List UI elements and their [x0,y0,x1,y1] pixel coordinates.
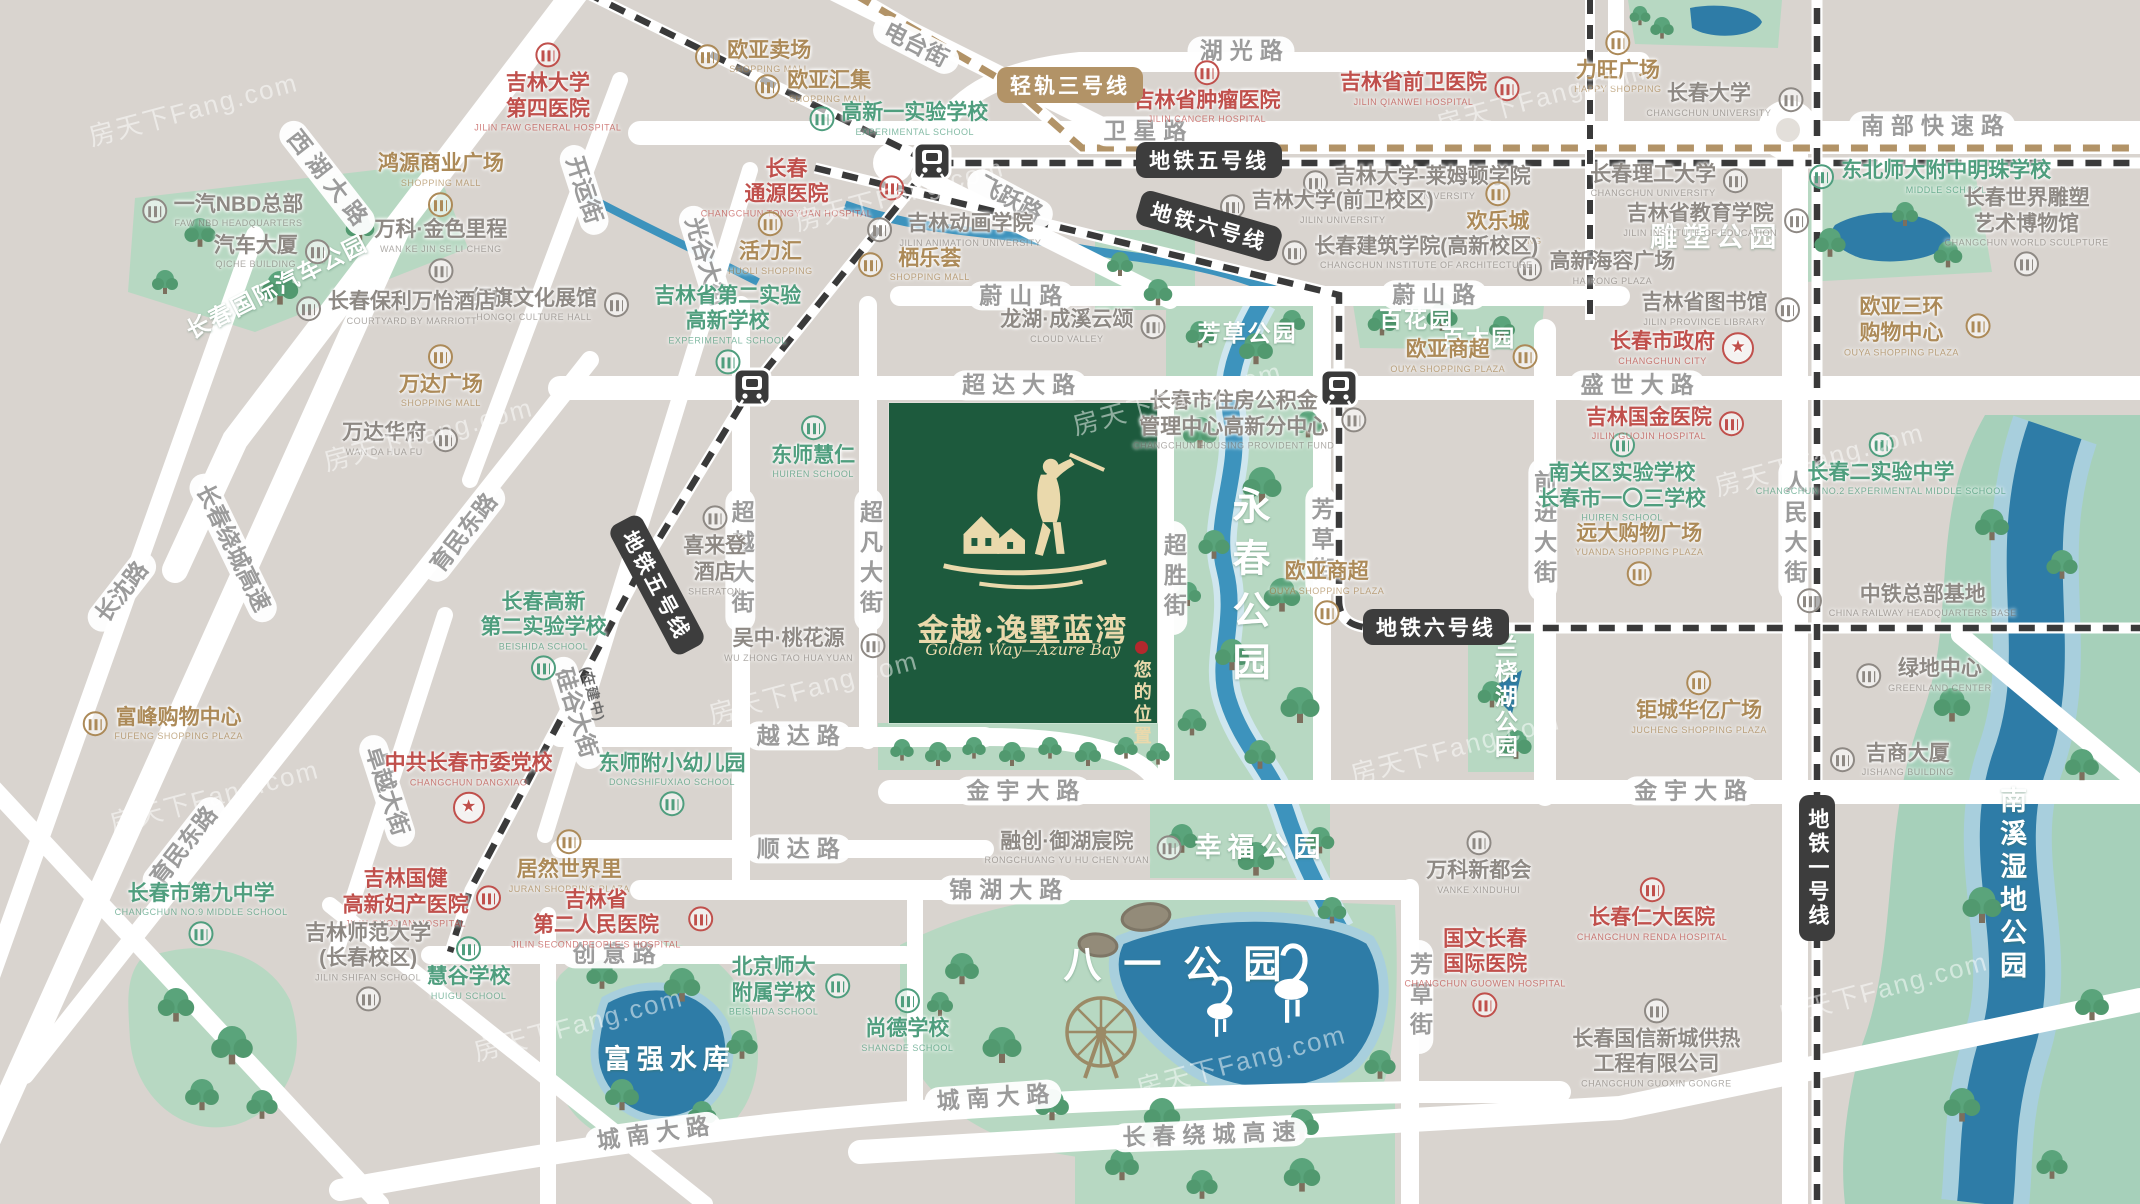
poi-name: 东北师大附中明珠学校 [1841,158,2051,184]
poi-name: 吉林国健 [364,867,448,893]
poi-name-en: YUANDA SHOPPING PLAZA [1575,548,1704,559]
poi-name-en: RONGCHUANG YU HU CHEN YUAN [984,855,1149,866]
poi-text: 吉林国金医院JILIN GUOJIN HOSPITAL [1586,405,1712,443]
poi-name-en: CHANGCHUN GUOXIN GONGRE [1581,1078,1732,1089]
poi-text: 国文长春国际医院CHANGCHUN GUOWEN HOSPITAL [1404,926,1565,989]
poi-text: 慧谷学校HUIGU SCHOOL [427,964,511,1002]
building-icon [428,344,453,369]
poi: 吉林师范大学(长春校区)JILIN SHIFAN SCHOOL [305,920,431,1011]
poi-name: 万科·金色里程 [374,218,507,244]
building-icon [1809,164,1834,189]
poi-text: 吴中·桃花源WU ZHONG TAO HUA YUAN [724,627,853,665]
poi: 汽车大厦QICHE BUILDING [214,233,330,271]
building-icon [305,239,330,264]
road-label: 超达大路 [950,371,1087,400]
poi-name-en: OUYA SHOPPING PLAZA [1844,347,1959,358]
poi: 融创·御湖宸院RONGCHUANG YU HU CHEN YUAN [984,829,1181,867]
poi: 国文长春国际医院CHANGCHUN GUOWEN HOSPITAL [1404,926,1565,1017]
poi-name-en: JILIN CANCER HOSPITAL [1148,115,1266,126]
poi-name-en: EXPERIMENTAL SCHOOL [856,127,975,138]
poi-text: 长春世界雕塑艺术博物馆CHANGCHUN WORLD SCULPTURE [1945,186,2109,249]
poi-name-en: SHERATON [688,586,741,597]
poi: 万达广场SHOPPING MALL [399,344,483,410]
poi-name: 欢乐城 [1466,210,1529,236]
poi-name: 吉林省图书馆 [1642,291,1768,317]
poi-name-en: FUFENG SHOPPING PLAZA [114,731,243,742]
poi: 吉林动画学院JILIN ANIMATION UNIVERSITY [868,211,1042,249]
road-label: 蔚山路 [1380,280,1487,309]
map-canvas: 金越·逸墅蓝湾 Golden Way—Azure Bay 您的位置 西湖大路开运… [0,0,2140,1204]
poi-name: 远大购物广场 [1576,521,1702,547]
poi: 远大购物广场YUANDA SHOPPING PLAZA [1575,521,1704,587]
building-icon [433,427,458,452]
poi-text: 中铁总部基地CHINA RAILWAY HEADQUARTERS BASE [1829,582,2017,620]
poi-name-en: JILIN UNIVERSITY [1300,215,1386,226]
poi-name: 中共长春市委党校 [385,751,553,777]
poi-text: 中共长春市委党校CHANGCHUN DANGXIAO [385,751,553,789]
building-icon [1282,240,1307,265]
poi: 栖乐荟SHOPPING MALL [858,246,970,284]
poi-text: 南关区实验学校长春市一〇三学校HUIREN SCHOOL [1538,460,1706,523]
poi-name-en: CHANGCHUN CITY [1618,356,1707,367]
poi-name: 欧亚汇集 [787,68,871,94]
poi-name-line2: 购物中心 [1859,320,1943,346]
project-name-en: Golden Way—Azure Bay [925,640,1120,659]
poi-name-en: JILIN INSTITUTE OF EDUCATION [1623,228,1777,239]
poi-name-en: SHOPPING MALL [401,399,481,410]
poi-text: 喜来登酒店SHERATON [683,534,746,597]
park-label: 八一公园 [1063,933,1303,988]
poi-name-line2: 艺术博物馆 [1974,211,2079,237]
metro-line-badge: 地铁一号线 [1799,795,1835,941]
poi-text: 融创·御湖宸院RONGCHUANG YU HU CHEN YUAN [984,829,1149,867]
poi-name: 居然世界里 [517,857,622,883]
poi-text: 长春市住房公积金管理中心高新分中心CHANGCHUN HOUSING PROVI… [1133,389,1334,452]
building-icon [531,655,556,680]
poi-text: 高新海容广场HAIRONG PLAZA [1549,250,1675,288]
poi-name-line2: (长春校区) [319,946,417,972]
poi-name: 欧亚三环 [1859,295,1943,321]
poi: 东师慧仁HUIREN SCHOOL [771,415,855,481]
building-icon [535,42,560,67]
road-label: 蔚山路 [967,282,1074,311]
poi: 长春仁大医院CHANGCHUN RENDA HOSPITAL [1577,877,1727,943]
poi-name-en: JILIN SECOND PEOPLE'S HOSPITAL [511,939,681,950]
poi-text: 鸿源商业广场SHOPPING MALL [378,151,504,189]
poi-text: 吉林省图书馆JILIN PROVINCE LIBRARY [1642,291,1768,329]
poi-name-en: COURTYARD BY MARRIOTT [347,316,478,327]
poi-name: 吉林大学(前卫校区) [1252,188,1434,214]
poi-name: 长春市政府 [1610,329,1715,355]
poi-name: 融创·御湖宸院 [1000,829,1133,855]
poi-text: 一汽NBD总部FAW NBD HEADQUARTERS [174,192,304,230]
poi: 吉林省前卫医院JILIN QIANWEI HOSPITAL [1340,70,1519,108]
poi-text: 吉商大厦JISHANG BUILDING [1862,741,1954,779]
poi: 尚德学校SHANGDE SCHOOL [861,988,953,1054]
poi-name-line2: 工程有限公司 [1593,1052,1719,1078]
poi-text: 北京师大附属学校BEISHIDA SCHOOL [729,954,819,1017]
poi: 万达华府WAN DA HUA FU [342,421,458,459]
building-icon [142,198,167,223]
poi: 长春保利万怡酒店COURTYARD BY MARRIOTT [296,289,496,327]
star-icon: ★ [1722,332,1754,364]
park-label: 永春公园 [1220,486,1275,694]
poi-name-en: CHANGCHUN HOUSING PROVIDENT FUND [1133,441,1334,452]
poi-text: 欧亚商超OUYA SHOPPING PLAZA [1269,560,1384,598]
building-icon [860,633,885,658]
poi-name: 喜来登 [683,534,746,560]
poi-name-en: BEISHIDA SCHOOL [729,1007,819,1018]
poi-name-en: JILIN SHIFAN SCHOOL [315,972,421,983]
poi-text: 长春通源医院CHANGCHUN TONGYUAN HOSPITAL [701,156,873,219]
poi-text: 富峰购物中心FUFENG SHOPPING PLAZA [114,705,243,743]
poi-name: 欧亚商超 [1406,338,1490,364]
your-location-marker: 您的位置 [1129,641,1155,748]
road-label: 盛世大路 [1569,371,1706,400]
poi-text: 东师慧仁HUIREN SCHOOL [771,443,855,481]
poi-name: 慧谷学校 [427,964,511,990]
poi-text: 龙湖·成溪云颂CLOUD VALLEY [1000,307,1133,345]
poi-name-en: SHOPPING MALL [890,273,970,284]
poi-name-en: OUYA SHOPPING PLAZA [1269,586,1384,597]
poi-name-en: JILIN PROVINCE LIBRARY [1643,317,1765,328]
road-label: 南部快速路 [1849,112,2016,141]
poi-name: 国文长春 [1443,926,1527,952]
poi-name: 万达广场 [399,372,483,398]
poi-name-en: HUIGU SCHOOL [431,991,507,1002]
poi-name: 活力汇 [739,240,802,266]
poi: 高新一实验学校EXPERIMENTAL SCHOOL [809,100,988,138]
poi-text: 长春保利万怡酒店COURTYARD BY MARRIOTT [328,289,496,327]
poi-text: 欧亚商超OUYA SHOPPING PLAZA [1390,338,1505,376]
building-icon [1156,835,1181,860]
poi-name: 吉林师范大学 [305,920,431,946]
building-icon [2014,252,2039,277]
poi-name-en: HUIREN SCHOOL [772,470,854,481]
poi: 中铁总部基地CHINA RAILWAY HEADQUARTERS BASE [1797,582,2017,620]
poi: 吉林省图书馆JILIN PROVINCE LIBRARY [1642,291,1800,329]
building-icon [1966,314,1991,339]
building-icon [476,886,501,911]
building-icon [456,936,481,961]
poi-name-line2: 高新学校 [686,309,770,335]
poi: 长春理工大学CHANGCHUN UNIVERSITY [1590,162,1748,200]
poi: 南关区实验学校长春市一〇三学校HUIREN SCHOOL [1538,432,1706,523]
your-location-dot [1135,641,1148,654]
poi: 吉林省第二人民医院JILIN SECOND PEOPLE'S HOSPITAL [511,887,713,950]
building-icon [1784,208,1809,233]
poi-name: 长春仁大医院 [1589,905,1715,931]
poi: 喜来登酒店SHERATON [683,506,746,597]
poi-name-en: DONGSHIFUXIAO SCHOOL [609,778,735,789]
poi: 龙湖·成溪云颂CLOUD VALLEY [1000,307,1165,345]
poi-text: 吉林省第二人民医院JILIN SECOND PEOPLE'S HOSPITAL [511,887,681,950]
poi-text: 长春市政府CHANGCHUN CITY [1610,329,1715,367]
poi-name-en: GREENLAND CENTER [1888,683,1992,694]
building-icon [895,988,920,1013]
building-icon [296,296,321,321]
building-icon [1140,314,1165,339]
building-icon [1512,344,1537,369]
poi: 吉林省肿瘤医院JILIN CANCER HOSPITAL [1133,60,1280,126]
poi-name-en: OUYA SHOPPING PLAZA [1390,364,1505,375]
poi-text: 吉林省肿瘤医院JILIN CANCER HOSPITAL [1133,88,1280,126]
poi-name-en: SHOPPING MALL [401,178,481,189]
poi-name: 长春世界雕塑 [1964,186,2090,212]
poi: 万科·金色里程WAN KE JIN SE LI CHENG [374,218,507,284]
building-icon [1473,992,1498,1017]
poi: 钜城华亿广场JUCHENG SHOPPING PLAZA [1631,670,1767,736]
building-icon [1605,30,1630,55]
poi-name-en: JILIN QIANWEI HOSPITAL [1354,97,1474,108]
road-label: 超胜街 [1158,521,1187,635]
building-icon [1797,588,1822,613]
poi: 北京师大附属学校BEISHIDA SCHOOL [729,954,851,1017]
poi-name: 吴中·桃花源 [733,627,845,653]
poi-name: 一汽NBD总部 [174,192,304,218]
poi-name-en: QICHE BUILDING [216,259,297,270]
poi-name: 东师慧仁 [771,443,855,469]
poi-text: 万科·金色里程WAN KE JIN SE LI CHENG [374,218,507,256]
building-icon [825,974,850,999]
building-icon [809,107,834,132]
poi-name: 长春理工大学 [1590,162,1716,188]
poi-text: 吉林大学第四医院JILIN FAW GENERAL HOSPITAL [474,70,621,133]
road-label: 金宇大路 [1622,776,1759,805]
building-icon [1341,408,1366,433]
poi: 万科新都会VANKE XINDUHUI [1426,830,1531,896]
poi-text: 长春市第九中学CHANGCHUN NO.9 MIDDLE SCHOOL [115,881,288,919]
building-icon [428,192,453,217]
poi-name: 绿地中心 [1898,657,1982,683]
poi-text: 长春高新第二实验学校BEISHIDA SCHOOL [481,589,607,652]
poi-name: 汽车大厦 [214,233,298,259]
poi-name-en: JILIN ANIMATION UNIVERSITY [900,238,1042,249]
building-icon [1640,877,1665,902]
poi-name-en: JILIN FAW GENERAL HOSPITAL [474,123,621,134]
poi-name: 吉商大厦 [1866,741,1950,767]
road-label: 超凡大街 [854,488,883,632]
metro-line-badge: 地铁五号线 [1136,142,1282,178]
poi-name-en: WAN KE JIN SE LI CHENG [380,244,502,255]
poi: 长春二实验中学CHANGCHUN NO.2 EXPERIMENTAL MIDDL… [1756,432,2007,498]
poi: 欧亚三环购物中心OUYA SHOPPING PLAZA [1844,295,1991,358]
poi-name-line2: 长春市一〇三学校 [1538,486,1706,512]
poi-name: 长春大学 [1667,81,1751,107]
poi-name-line2: 管理中心高新分中心 [1139,414,1328,440]
poi-text: 绿地中心GREENLAND CENTER [1888,657,1992,695]
poi-name-line2: 通源医院 [745,182,829,208]
poi-name-en: CHANGCHUN NO.2 EXPERIMENTAL MIDDLE SCHOO… [1756,487,2007,498]
poi-text: 万达广场SHOPPING MALL [399,372,483,410]
poi-name: 万科新都会 [1426,858,1531,884]
park-label: 幸福公园 [1194,826,1326,865]
building-icon [1775,297,1800,322]
park-label: 富强水库 [604,1038,736,1077]
project-logo-golfer-icon [924,435,1122,601]
building-icon [1466,830,1491,855]
project-block: 金越·逸墅蓝湾 Golden Way—Azure Bay [889,403,1157,723]
park-label: 芳草公园 [1198,314,1298,348]
poi-text: 尚德学校SHANGDE SCHOOL [861,1016,953,1054]
poi-text: 吉林大学(前卫校区)JILIN UNIVERSITY [1252,188,1434,226]
poi-name-en: FAW NBD HEADQUARTERS [175,219,303,230]
poi-text: 吉林动画学院JILIN ANIMATION UNIVERSITY [900,211,1042,249]
building-icon [1869,432,1894,457]
poi: 欧亚商超OUYA SHOPPING PLAZA [1390,338,1537,376]
poi-name-en: CHANGCHUN UNIVERSITY [1591,188,1716,199]
building-icon [356,986,381,1011]
poi-name: 吉林动画学院 [907,211,1033,237]
building-icon [1719,411,1744,436]
poi-text: 长春大学CHANGCHUN UNIVERSITY [1646,81,1771,119]
poi: 一汽NBD总部FAW NBD HEADQUARTERS [142,192,304,230]
building-icon [1856,663,1881,688]
poi-name-en: BEISHIDA SCHOOL [499,641,589,652]
poi-name: 万达华府 [342,421,426,447]
poi-name: 吉林省教育学院 [1627,202,1774,228]
poi-text: 吉林省教育学院JILIN INSTITUTE OF EDUCATION [1623,202,1777,240]
poi-name-en: CHANGCHUN DANGXIAO [410,778,528,789]
poi: 居然世界里JURAN SHOPPING PLAZA [509,829,630,895]
poi-text: 万达华府WAN DA HUA FU [342,421,426,459]
building-icon [1627,562,1652,587]
poi-text: 长春理工大学CHANGCHUN UNIVERSITY [1590,162,1716,200]
poi-text: 长春仁大医院CHANGCHUN RENDA HOSPITAL [1577,905,1727,943]
building-icon [557,829,582,854]
park-label: 兰桡湖公园 [1487,635,1521,760]
poi: 长春大学CHANGCHUN UNIVERSITY [1646,81,1803,119]
poi-name-en: HUOLI SHOPPING [728,266,813,277]
poi-text: 万科新都会VANKE XINDUHUI [1426,858,1531,896]
poi-text: 欧亚三环购物中心OUYA SHOPPING PLAZA [1844,295,1959,358]
poi-name-en: CHANGCHUN UNIVERSITY [1646,108,1771,119]
building-icon [1778,87,1803,112]
star-icon: ★ [453,792,485,824]
poi-name-en: VANKE XINDUHUI [1437,885,1520,896]
poi-name-en: HAIRONG PLAZA [1573,276,1653,287]
poi-text: 活力汇HUOLI SHOPPING [728,240,813,278]
road-label: 锦湖大路 [937,875,1074,904]
poi-name-en: CHANGCHUN RENDA HOSPITAL [1577,932,1727,943]
poi: 长春市第九中学CHANGCHUN NO.9 MIDDLE SCHOOL [115,881,288,947]
poi: 慧谷学校HUIGU SCHOOL [427,936,511,1002]
poi-name-line2: 高新妇产医院 [343,892,469,918]
poi-name-en: CHANGCHUN INSTITUTE OF ARCHITECTURE [1320,261,1533,272]
poi-name-en: JUCHENG SHOPPING PLAZA [1631,725,1767,736]
poi-name-en: CLOUD VALLEY [1030,334,1103,345]
poi-text: 汽车大厦QICHE BUILDING [214,233,298,271]
poi-name: 南关区实验学校 [1549,460,1696,486]
poi-name: 鸿源商业广场 [378,151,504,177]
poi-name: 长春建筑学院(高新校区) [1314,234,1538,260]
poi-name: 长春国信新城供热 [1572,1026,1740,1052]
poi-name-en: JILIN GUOJIN HOSPITAL [1592,432,1706,443]
poi-text: 长春二实验中学CHANGCHUN NO.2 EXPERIMENTAL MIDDL… [1756,460,2007,498]
poi-name-line2: 第二实验学校 [481,615,607,641]
poi-name: 中铁总部基地 [1860,582,1986,608]
poi-name: 龙湖·成溪云颂 [1000,307,1133,333]
poi: 吉商大厦JISHANG BUILDING [1830,741,1954,779]
building-icon [801,415,826,440]
poi: 长春世界雕塑艺术博物馆CHANGCHUN WORLD SCULPTURE [1945,186,2109,277]
poi-name-en: WU ZHONG TAO HUA YUAN [724,653,853,664]
poi-name: 长春高新 [502,589,586,615]
building-icon [1314,600,1339,625]
poi-name-en: CHANGCHUN WORLD SCULPTURE [1945,238,2109,249]
poi-name-en: CHINA RAILWAY HEADQUARTERS BASE [1829,609,2017,620]
road-label: 金宇大路 [954,776,1091,805]
poi-text: 长春国信新城供热工程有限公司CHANGCHUN GUOXIN GONGRE [1572,1026,1740,1089]
poi-name-line2: 酒店 [694,559,736,585]
building-icon [1494,77,1519,102]
poi-name: 东师附小幼儿园 [598,751,745,777]
poi-name: 欧亚商超 [1285,560,1369,586]
poi-name: 长春市第九中学 [128,881,275,907]
poi-name: 吉林省 [565,887,628,913]
poi-name: 长春市住房公积金 [1150,389,1318,415]
poi-name-en: EXPERIMENTAL SCHOOL [668,335,787,346]
poi-name-en: JISHANG BUILDING [1862,768,1954,779]
poi-name: 欧亚卖场 [727,38,811,64]
poi: 长春国信新城供热工程有限公司CHANGCHUN GUOXIN GONGRE [1572,998,1740,1089]
building-icon [715,349,740,374]
poi: 吉林省教育学院JILIN INSTITUTE OF EDUCATION [1623,202,1809,240]
poi: 高新海容广场HAIRONG PLAZA [1517,250,1675,288]
poi: 吉林省第二实验高新学校EXPERIMENTAL SCHOOL [654,283,801,374]
poi-name-en: CHANGCHUN NO.9 MIDDLE SCHOOL [115,908,288,919]
poi-name: 高新海容广场 [1549,250,1675,276]
building-icon [1194,60,1219,85]
road-label: 顺达路 [745,834,852,863]
building-icon [695,44,720,69]
poi-name-line2: 附属学校 [732,980,816,1006]
poi-name: 高新一实验学校 [841,100,988,126]
poi: 长春通源医院CHANGCHUN TONGYUAN HOSPITAL [701,156,905,219]
building-icon [1687,670,1712,695]
building-icon [428,258,453,283]
building-icon [755,74,780,99]
building-icon [1830,747,1855,772]
building-icon [1723,168,1748,193]
poi: 绿地中心GREENLAND CENTER [1856,657,1992,695]
poi-name-en: CHANGCHUN GUOWEN HOSPITAL [1404,978,1565,989]
poi: 长春市住房公积金管理中心高新分中心CHANGCHUN HOUSING PROVI… [1133,389,1366,452]
poi-text: 栖乐荟SHOPPING MALL [890,246,970,284]
poi-name: 吉林省前卫医院 [1340,70,1487,96]
poi-text: 吉林省前卫医院JILIN QIANWEI HOSPITAL [1340,70,1487,108]
poi-name-line2: 第二人民医院 [533,913,659,939]
poi-name-line2: 国际医院 [1443,952,1527,978]
building-icon [659,792,684,817]
park-label: 南溪湿地公园 [1992,786,2031,984]
poi-text: 远大购物广场YUANDA SHOPPING PLAZA [1575,521,1704,559]
your-location-label: 您的位置 [1129,660,1155,748]
poi: 活力汇HUOLI SHOPPING [728,212,813,278]
building-icon [879,175,904,200]
poi-name: 尚德学校 [865,1016,949,1042]
building-icon [702,506,727,531]
poi-name: 栖乐荟 [898,246,961,272]
building-icon [604,292,629,317]
poi-name: 钜城华亿广场 [1636,698,1762,724]
poi: 鸿源商业广场SHOPPING MALL [378,151,504,217]
poi-text: 钜城华亿广场JUCHENG SHOPPING PLAZA [1631,698,1767,736]
poi-text: 高新一实验学校EXPERIMENTAL SCHOOL [841,100,988,138]
poi: 富峰购物中心FUFENG SHOPPING PLAZA [82,705,243,743]
poi-name: 吉林省肿瘤医院 [1133,88,1280,114]
metro-line-badge: 地铁六号线 [1363,609,1509,645]
